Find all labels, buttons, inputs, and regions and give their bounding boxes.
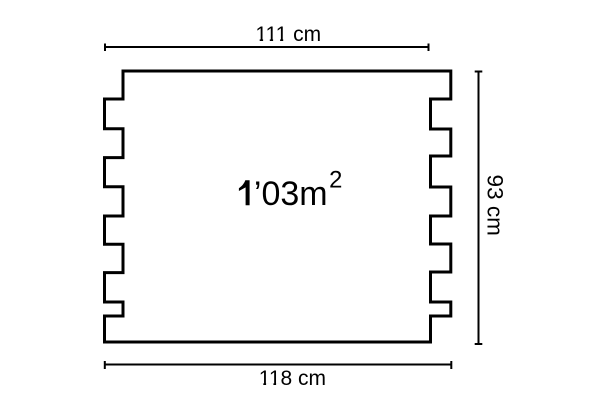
svg-text:118 cm: 118 cm	[259, 367, 326, 390]
svg-text:93 cm: 93 cm	[482, 175, 507, 236]
svg-text:111 cm: 111 cm	[255, 23, 321, 46]
svg-text:’03m2: ’03m2	[254, 166, 342, 213]
